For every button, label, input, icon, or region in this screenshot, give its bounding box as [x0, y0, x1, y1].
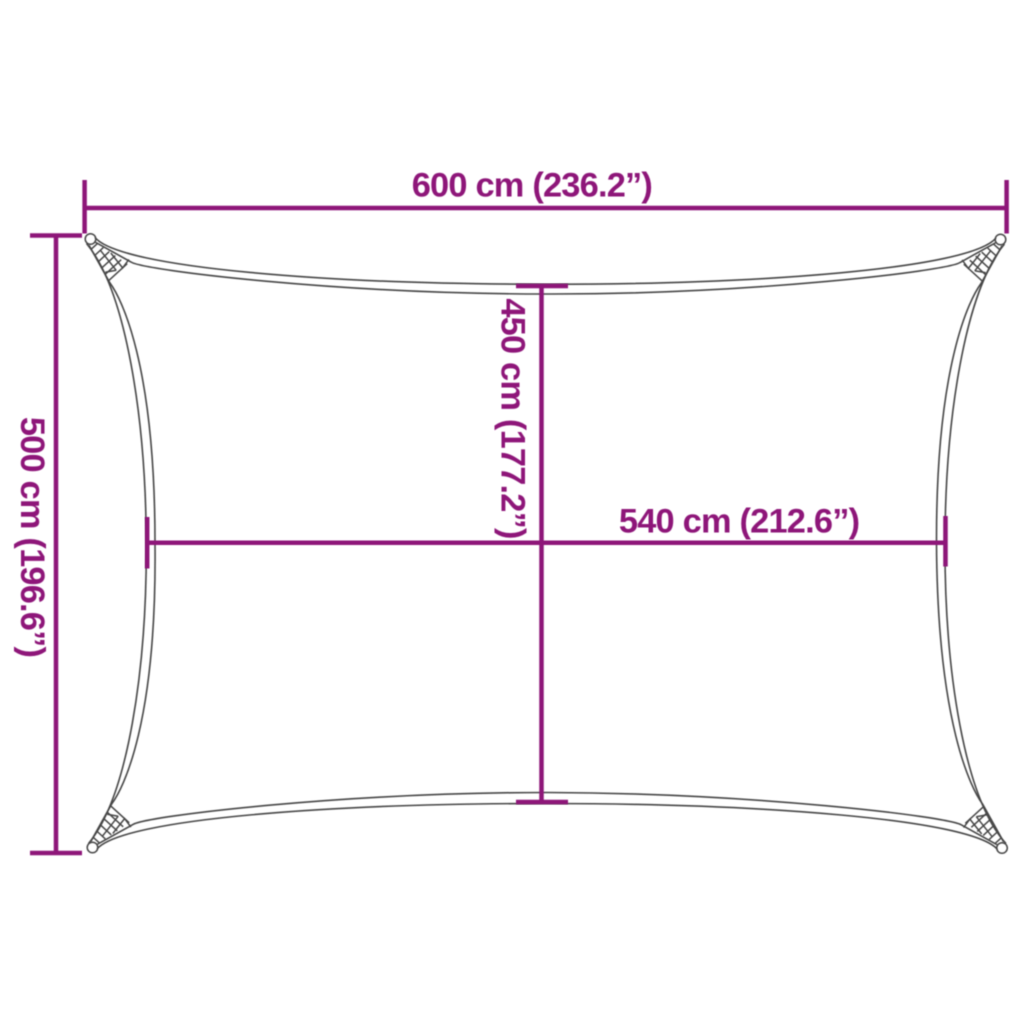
svg-text:450 cm (177.2”): 450 cm (177.2”): [494, 298, 532, 538]
svg-text:540 cm (212.6”): 540 cm (212.6”): [619, 503, 859, 541]
svg-text:500 cm (196.6”): 500 cm (196.6”): [13, 417, 51, 657]
svg-text:600 cm (236.2”): 600 cm (236.2”): [412, 167, 652, 205]
